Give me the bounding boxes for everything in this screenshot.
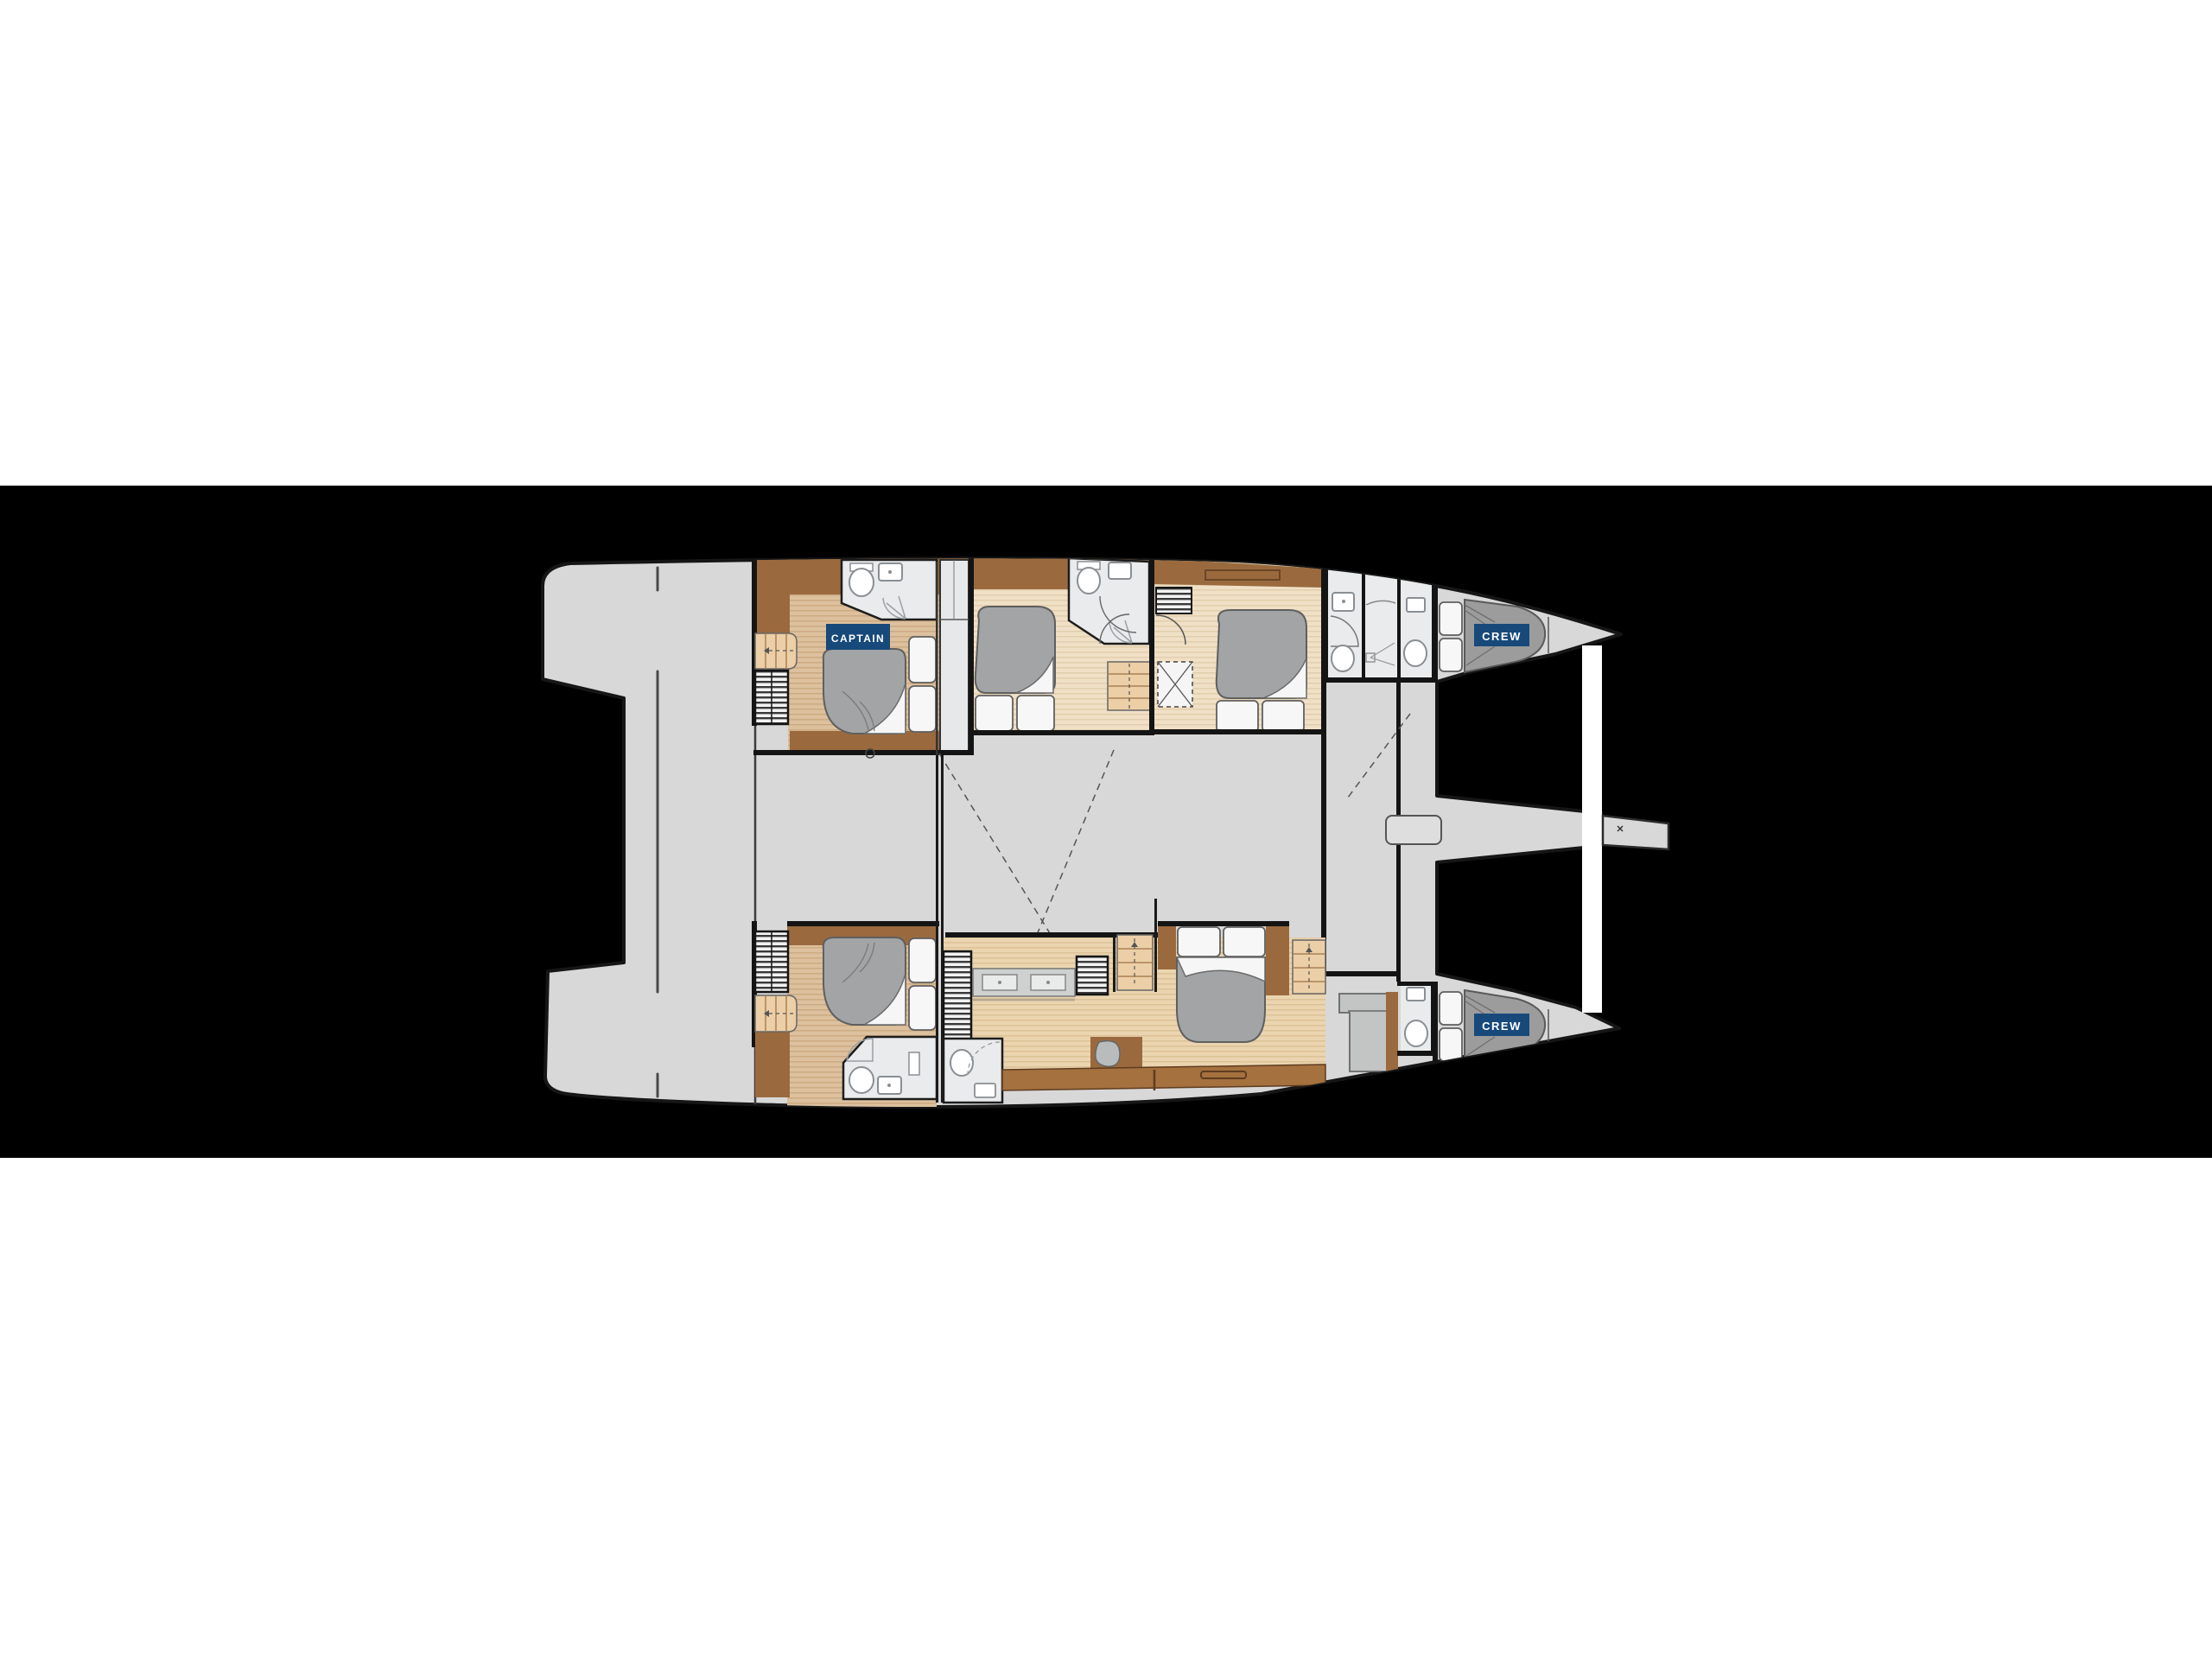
svg-text:CREW: CREW [1482, 630, 1522, 643]
svg-text:CAPTAIN: CAPTAIN [831, 632, 885, 645]
svg-text:CREW: CREW [1482, 1020, 1522, 1033]
